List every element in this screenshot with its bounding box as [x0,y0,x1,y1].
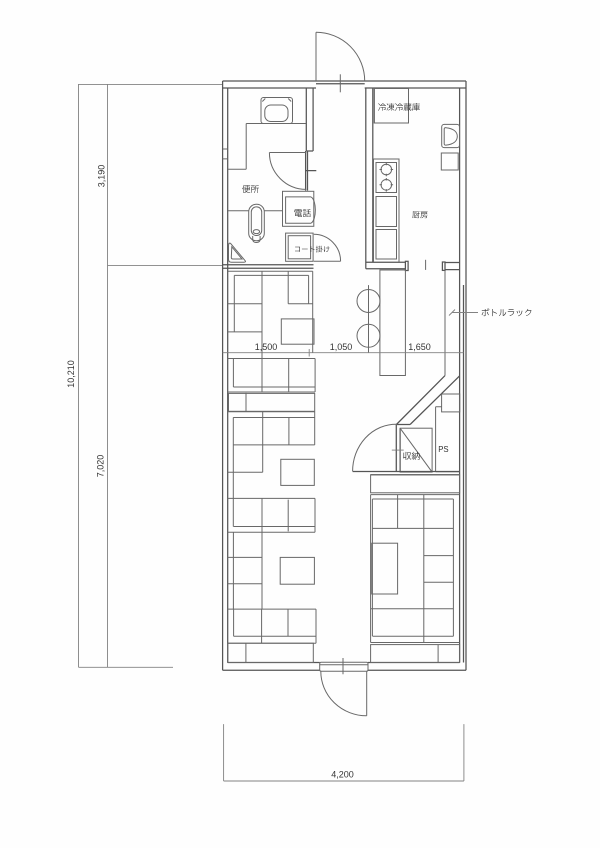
svg-text:PS: PS [438,445,448,454]
svg-text:10,210: 10,210 [66,360,76,388]
svg-text:3,190: 3,190 [97,165,107,188]
svg-text:1,650: 1,650 [408,342,431,352]
svg-text:4,200: 4,200 [331,770,354,780]
svg-text:1,050: 1,050 [330,342,353,352]
svg-text:1,500: 1,500 [255,342,278,352]
svg-text:7,020: 7,020 [96,455,106,478]
